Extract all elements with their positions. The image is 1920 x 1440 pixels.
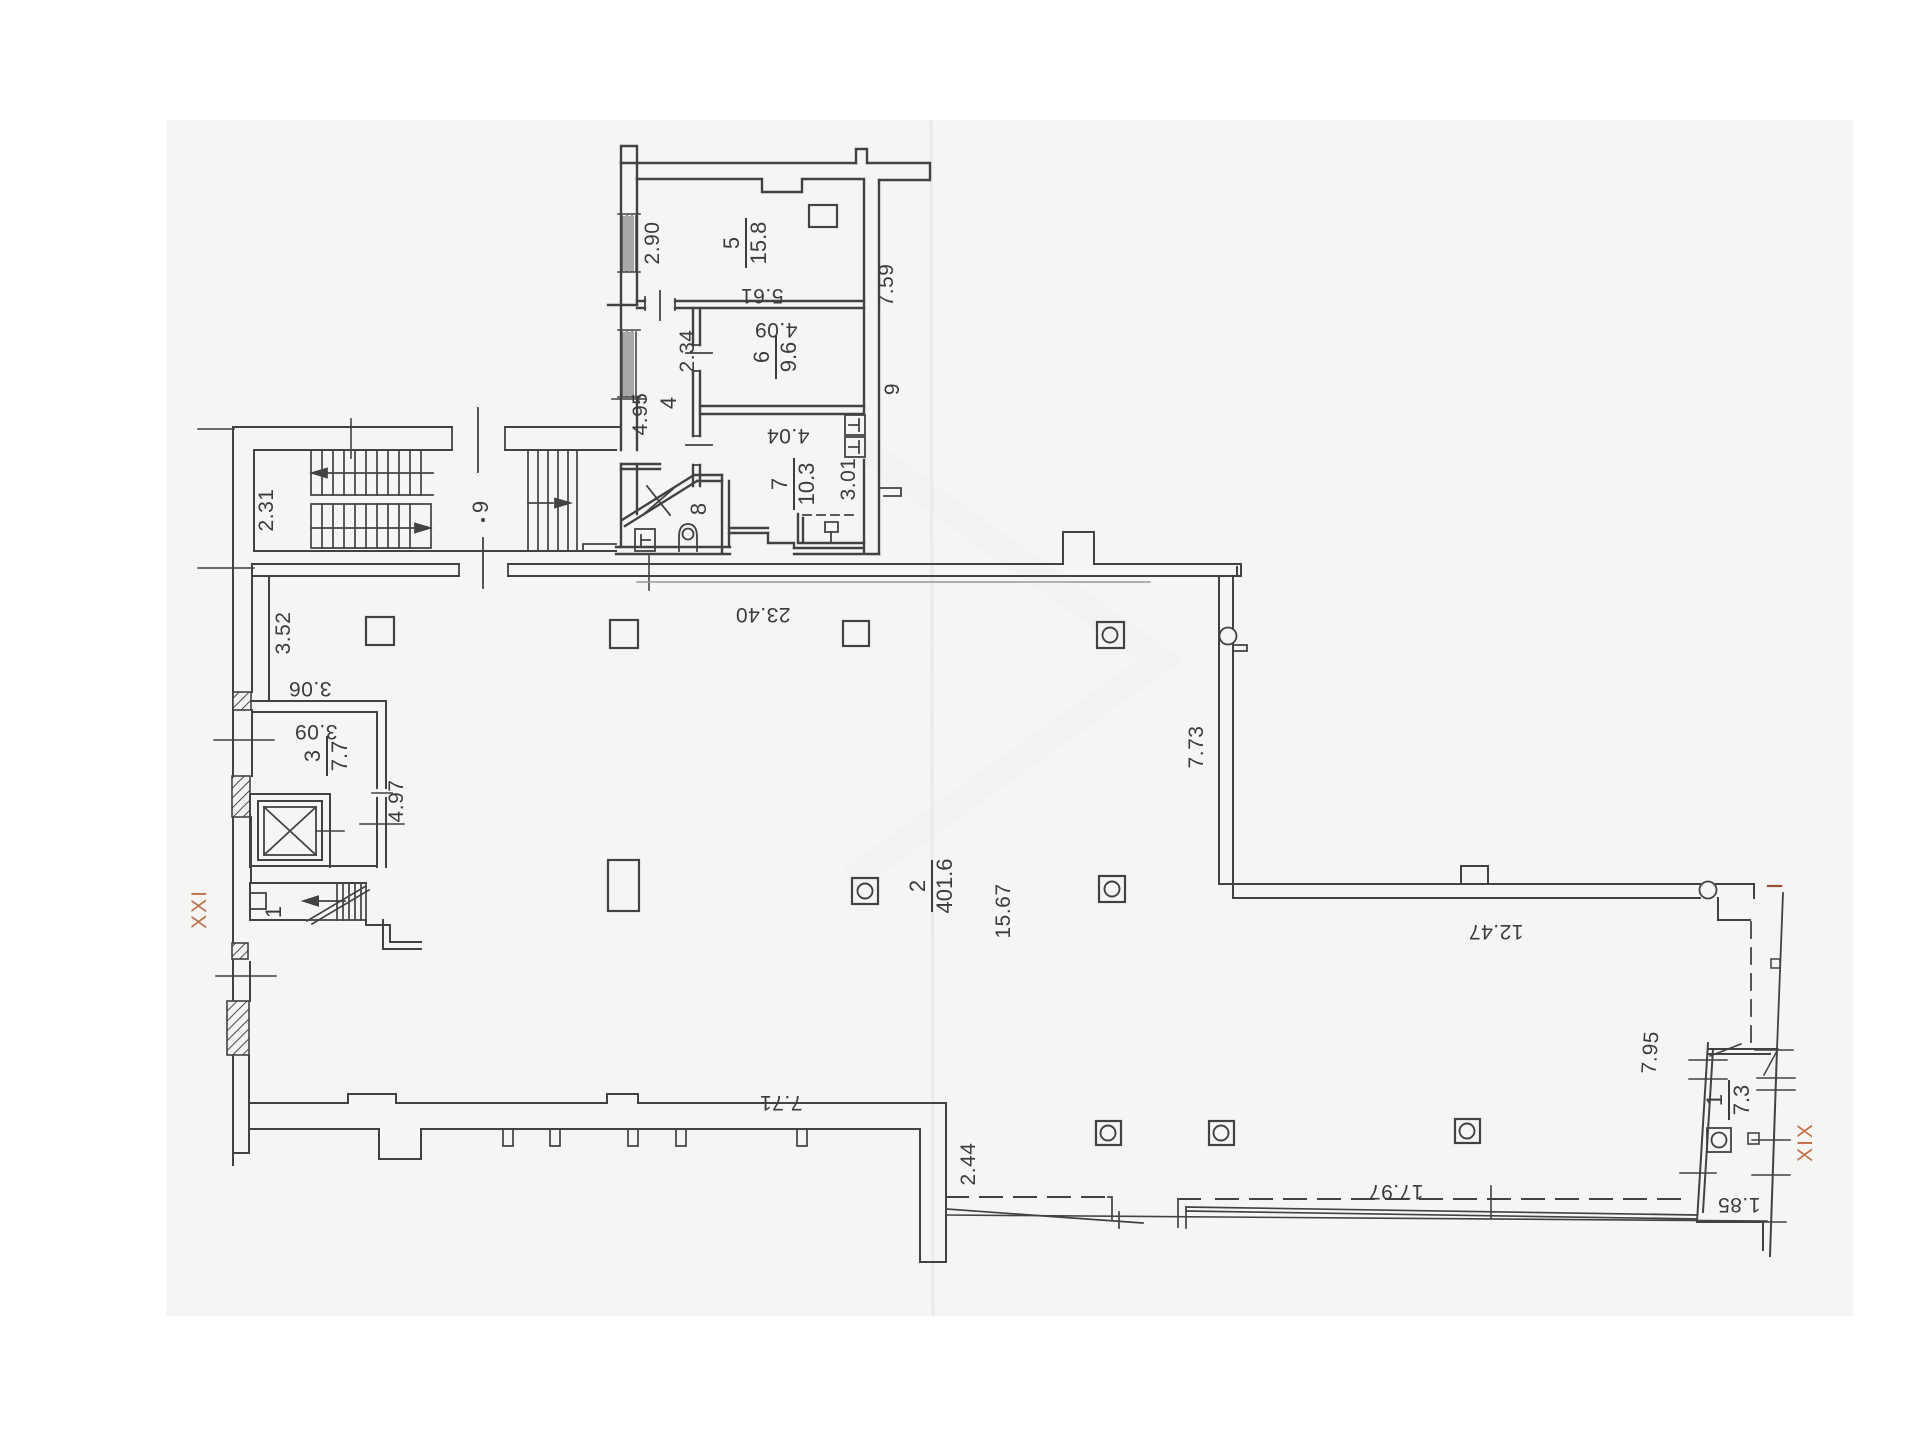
svg-text:7.71: 7.71: [760, 1091, 803, 1114]
svg-text:XXI: XXI: [188, 889, 211, 929]
svg-text:7.7: 7.7: [327, 741, 352, 772]
svg-text:12.47: 12.47: [1468, 920, 1523, 943]
svg-text:8: 8: [686, 503, 711, 515]
svg-text:2.90: 2.90: [641, 222, 664, 265]
svg-text:2.34: 2.34: [676, 330, 699, 373]
svg-text:1: 1: [261, 906, 286, 918]
svg-text:7: 7: [767, 478, 792, 490]
svg-text:4.04: 4.04: [767, 424, 810, 447]
svg-text:3.01: 3.01: [837, 458, 860, 501]
svg-text:4: 4: [656, 397, 681, 409]
svg-text:9: 9: [881, 383, 904, 395]
svg-text:15.8: 15.8: [746, 222, 771, 265]
svg-text:7.59: 7.59: [875, 264, 898, 307]
svg-text:3: 3: [300, 750, 325, 762]
svg-text:2.31: 2.31: [255, 489, 278, 532]
svg-text:7.3: 7.3: [1729, 1085, 1754, 1116]
svg-text:3.52: 3.52: [272, 612, 295, 655]
svg-text:3.06: 3.06: [289, 677, 332, 700]
svg-text:7.73: 7.73: [1185, 726, 1208, 769]
svg-text:1: 1: [1702, 1094, 1727, 1106]
svg-text:9.6: 9.6: [776, 342, 801, 373]
svg-text:10.3: 10.3: [794, 463, 819, 506]
svg-text:401.6: 401.6: [932, 858, 957, 913]
svg-text:4.97: 4.97: [385, 780, 408, 823]
svg-text:7.95: 7.95: [1638, 1030, 1664, 1074]
svg-text:5: 5: [719, 237, 744, 249]
svg-text:5.61: 5.61: [741, 284, 784, 307]
svg-text:17.97: 17.97: [1368, 1180, 1423, 1203]
svg-text:2: 2: [905, 880, 930, 892]
svg-text:2.44: 2.44: [957, 1143, 980, 1186]
svg-text:6: 6: [749, 351, 774, 363]
svg-text:4.95: 4.95: [629, 393, 652, 436]
svg-text:15.67: 15.67: [992, 883, 1015, 938]
svg-text:XIX: XIX: [1794, 1122, 1817, 1162]
svg-text:1.85: 1.85: [1718, 1193, 1761, 1216]
svg-text:3.09: 3.09: [295, 720, 338, 743]
svg-text:23.40: 23.40: [735, 603, 790, 626]
svg-text:9: 9: [468, 501, 493, 513]
